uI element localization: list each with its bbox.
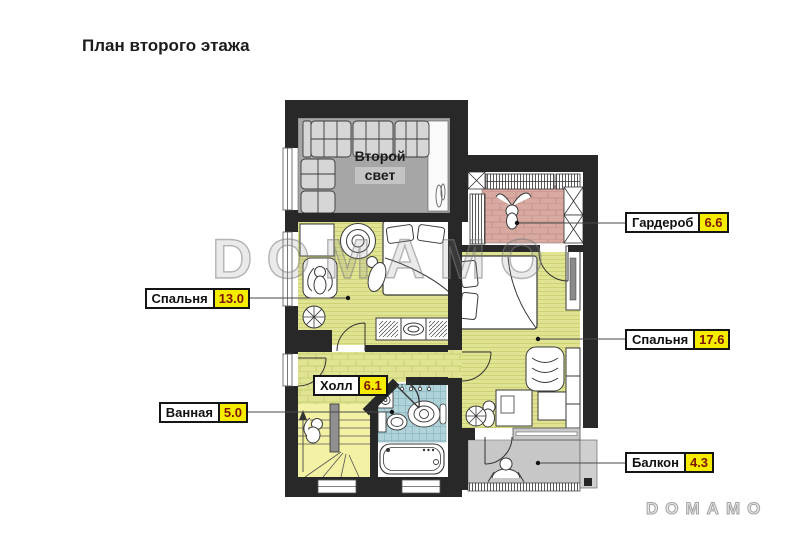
room-name: Гардероб <box>627 214 698 231</box>
room-name: Балкон <box>627 454 684 471</box>
tv <box>570 258 576 300</box>
callout-bathroom: Ванная 5.0 <box>159 402 248 423</box>
second-light-line1: Второй <box>355 148 406 164</box>
armchair <box>526 347 564 391</box>
watermark-center: DOMAMO <box>212 226 557 291</box>
balcony-post <box>584 478 592 486</box>
room-area: 13.0 <box>213 290 248 307</box>
callout-bedroom-small: Спальня 13.0 <box>145 288 250 309</box>
toilet-tank <box>378 412 386 432</box>
person-figure <box>420 410 429 419</box>
hall-doorway-floor <box>448 350 462 378</box>
second-light-label: Второй свет <box>338 148 422 184</box>
room-name: Спальня <box>627 331 693 348</box>
balcony-railing <box>468 483 580 491</box>
callout-bedroom-large: Спальня 17.6 <box>625 329 730 350</box>
banister <box>330 404 339 452</box>
room-name: Спальня <box>147 290 213 307</box>
room-area: 6.1 <box>358 377 386 394</box>
floor-plan-page: План второго этажа <box>0 0 800 533</box>
callout-hall: Холл 6.1 <box>313 375 388 396</box>
bath-faucet <box>386 448 390 452</box>
side-table <box>538 392 566 420</box>
room-area: 4.3 <box>684 454 712 471</box>
closet-strip <box>566 348 580 428</box>
desk-item <box>501 396 514 413</box>
room-name: Ванная <box>161 404 218 421</box>
watermark-corner: DOMAMO <box>646 499 767 519</box>
callout-balcony: Балкон 4.3 <box>625 452 714 473</box>
pillow <box>460 292 479 320</box>
second-light-line2: свет <box>355 167 406 184</box>
room-area: 6.6 <box>698 214 726 231</box>
callout-wardrobe: Гардероб 6.6 <box>625 212 729 233</box>
room-name: Холл <box>315 377 358 394</box>
sofa-armrest <box>303 121 311 157</box>
sink-pedestal <box>440 404 446 424</box>
room-area: 5.0 <box>218 404 246 421</box>
room-area: 17.6 <box>693 331 728 348</box>
bathtub <box>380 444 444 474</box>
